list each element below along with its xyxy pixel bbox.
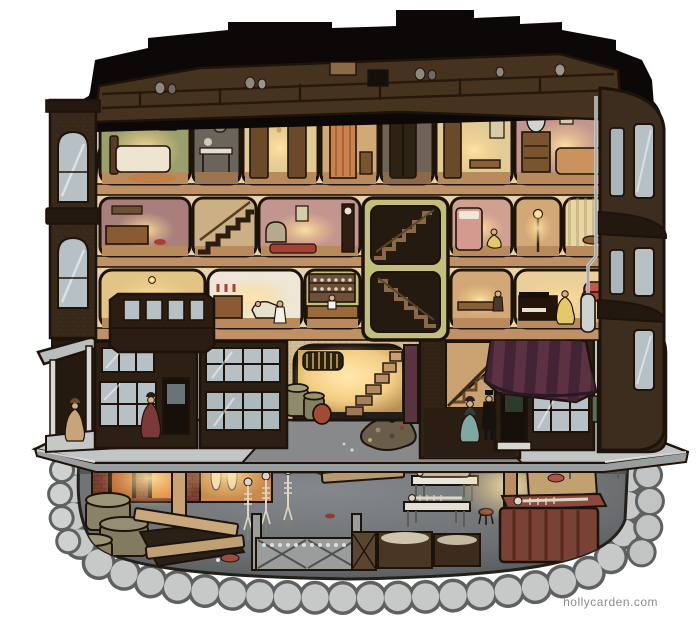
bench <box>470 160 500 168</box>
chandelier <box>149 277 156 284</box>
right-bay-tower <box>598 88 666 450</box>
facade-window-lower <box>58 238 88 308</box>
room-kitchen <box>100 198 190 256</box>
door <box>250 122 268 178</box>
bay-window <box>110 294 214 352</box>
building-cutaway-illustration: hollycarden.com <box>0 0 700 630</box>
room-barber-shop <box>208 270 302 328</box>
watermark-text: hollycarden.com <box>563 595 658 609</box>
room-stair-hall <box>193 198 256 256</box>
armchair <box>266 222 286 242</box>
bone-crates <box>352 532 480 570</box>
room-bedroom-2 <box>451 198 512 256</box>
wash-table <box>200 148 232 154</box>
left-facade <box>46 100 100 338</box>
figure-clerk <box>328 295 336 309</box>
storefront-center <box>200 334 287 448</box>
sconce <box>276 127 281 132</box>
door <box>444 122 461 178</box>
room-apothecary <box>305 270 360 328</box>
room-clock-parlor <box>259 198 360 256</box>
awning <box>485 334 596 402</box>
round-table <box>583 236 601 244</box>
illustration-canvas: hollycarden.com <box>0 0 700 630</box>
kitchen-counter <box>106 226 148 244</box>
awning-shop <box>485 334 603 450</box>
picture-frame <box>490 120 504 138</box>
central-stairwell <box>363 198 448 340</box>
coffin-chest <box>500 494 606 562</box>
grandfather-clock <box>342 204 354 252</box>
barber-counter <box>214 296 242 318</box>
attic-vent <box>368 70 388 86</box>
figure-craftsman <box>493 291 503 311</box>
arch-curtain <box>404 345 418 423</box>
room-lamp-corridor <box>515 198 561 256</box>
piano <box>519 292 557 320</box>
rug <box>128 173 176 183</box>
picture-frame <box>296 206 308 221</box>
door <box>288 122 306 178</box>
shelf <box>112 206 142 214</box>
pot <box>154 239 166 245</box>
side-table <box>360 152 372 174</box>
arch-gate <box>303 352 343 370</box>
facade-window-upper <box>58 132 88 202</box>
shop-door <box>163 378 189 434</box>
desk <box>458 302 494 310</box>
basin <box>204 138 212 146</box>
bed <box>116 146 170 172</box>
attic-crate <box>330 62 356 75</box>
red-rug <box>270 244 316 253</box>
room-workroom <box>451 270 512 328</box>
blood-stain <box>325 514 335 519</box>
facade-cornice <box>46 208 100 224</box>
